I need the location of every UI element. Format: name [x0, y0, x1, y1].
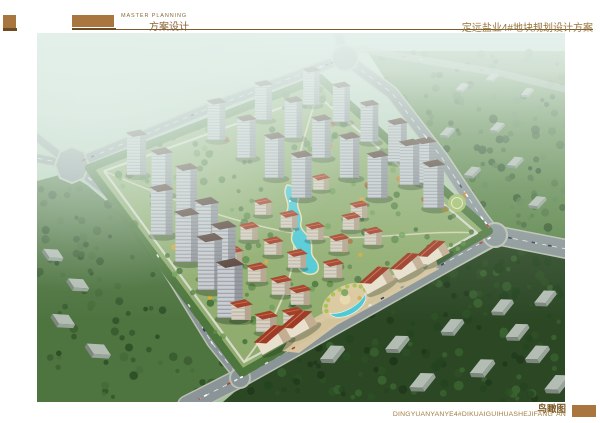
aerial-scene [37, 33, 565, 402]
header-underline-large [72, 28, 116, 31]
aerial-rendering [37, 33, 565, 402]
scheme-design-label: 方案设计 [149, 18, 189, 33]
header-block-large [72, 15, 114, 27]
haze-overlay-left [37, 33, 565, 402]
project-title: 定远盐业4#地块规划设计方案 [462, 19, 593, 34]
view-caption-pinyin: DINGYUANYANYE4#DIKUAIGUIHUASHEJIFANG' AN [393, 411, 566, 418]
footer-block [572, 405, 596, 417]
header-block-small [3, 15, 16, 28]
presentation-board: MASTER PLANNING 方案设计 定远盐业4#地块规划设计方案 [0, 0, 600, 423]
header-underline-small [3, 28, 17, 31]
